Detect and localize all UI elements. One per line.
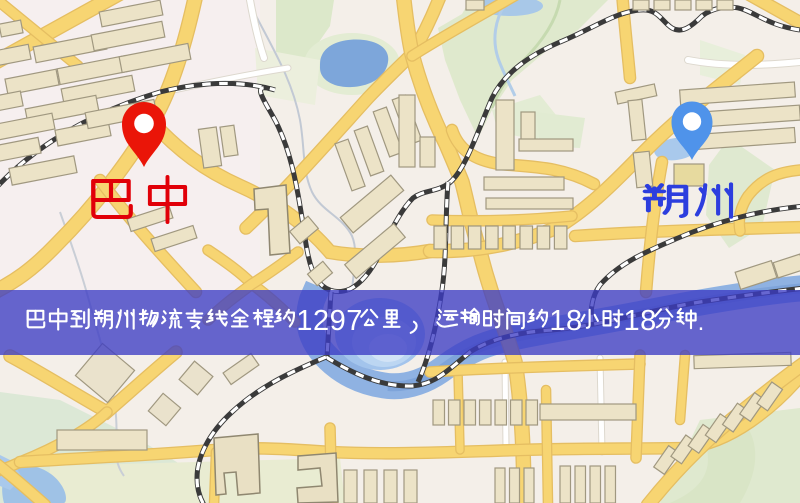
svg-text:18: 18: [624, 305, 657, 337]
svg-text:.: .: [698, 309, 705, 336]
svg-text:18: 18: [549, 305, 582, 337]
svg-text:1297: 1297: [296, 305, 363, 337]
